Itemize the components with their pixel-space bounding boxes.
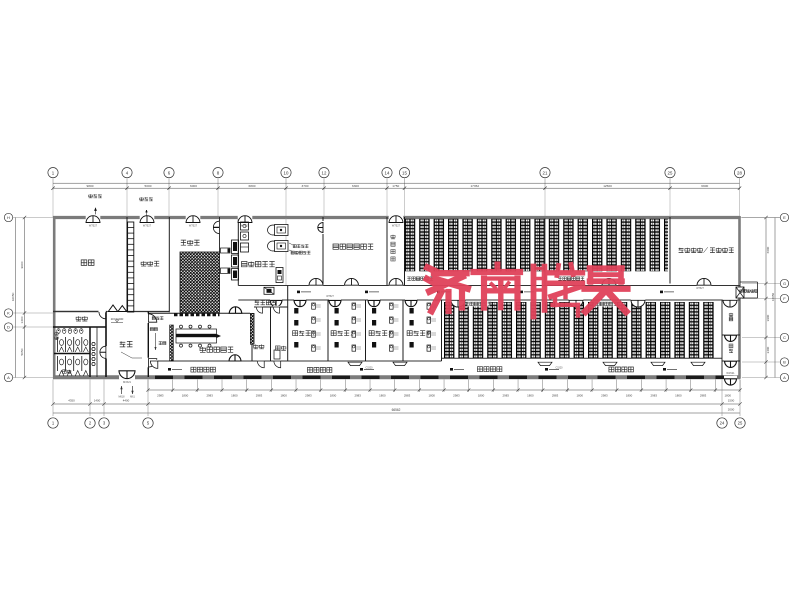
- svg-text:H: H: [7, 215, 10, 220]
- svg-text:6600: 6600: [766, 246, 770, 253]
- svg-text:2983: 2983: [502, 393, 509, 397]
- svg-text:3: 3: [389, 331, 392, 337]
- svg-text:B: B: [783, 360, 786, 365]
- svg-text:D: D: [7, 325, 10, 330]
- svg-text:2000: 2000: [728, 408, 735, 412]
- svg-text:W7527: W7527: [89, 224, 98, 228]
- svg-text:15: 15: [402, 170, 407, 175]
- svg-text:1800: 1800: [527, 393, 534, 397]
- svg-text:A: A: [783, 375, 786, 380]
- svg-text:21: 21: [543, 170, 548, 175]
- svg-text:W1521: W1521: [726, 371, 735, 375]
- svg-text:28: 28: [737, 170, 742, 175]
- svg-text:2983: 2983: [404, 393, 411, 397]
- svg-text:1F±0.000: 1F±0.000: [111, 317, 124, 321]
- svg-text:1800: 1800: [428, 393, 435, 397]
- svg-text:2983: 2983: [256, 393, 263, 397]
- svg-text:1750: 1750: [392, 184, 399, 188]
- svg-text:1800: 1800: [478, 393, 485, 397]
- svg-text:W7527: W7527: [392, 224, 401, 228]
- svg-text:2: 2: [351, 331, 354, 337]
- svg-text:2983: 2983: [305, 393, 312, 397]
- svg-text:2400: 2400: [766, 346, 770, 353]
- svg-text:16050: 16050: [11, 292, 15, 301]
- svg-text:2983: 2983: [206, 393, 213, 397]
- svg-text:M61: M61: [130, 396, 135, 399]
- svg-text:3700: 3700: [302, 184, 309, 188]
- svg-text:5000: 5000: [145, 184, 152, 188]
- svg-text:5050: 5050: [20, 348, 24, 355]
- svg-text:G: G: [783, 281, 786, 286]
- svg-text:1500: 1500: [728, 399, 735, 403]
- svg-text:C1520: C1520: [365, 366, 373, 369]
- svg-text:9600: 9600: [20, 261, 24, 268]
- svg-text:4: 4: [427, 331, 430, 337]
- svg-text:25: 25: [738, 421, 743, 426]
- svg-text:2983: 2983: [552, 393, 559, 397]
- svg-text:1800: 1800: [280, 393, 287, 397]
- svg-text:C: C: [783, 335, 786, 340]
- svg-text:4400: 4400: [123, 399, 130, 403]
- svg-text:W7527: W7527: [696, 287, 704, 290]
- svg-text:24: 24: [720, 421, 725, 426]
- svg-text:6300: 6300: [352, 184, 359, 188]
- svg-text:1800: 1800: [231, 393, 238, 397]
- svg-text:25: 25: [668, 170, 673, 175]
- svg-text:1800: 1800: [725, 393, 732, 397]
- svg-text:W7527: W7527: [143, 224, 152, 228]
- svg-text:12: 12: [322, 170, 327, 175]
- svg-text:C1520: C1520: [555, 366, 563, 369]
- svg-text:2983: 2983: [453, 393, 460, 397]
- svg-text:W7527: W7527: [326, 295, 334, 298]
- svg-text:1800: 1800: [675, 393, 682, 397]
- svg-text:6000: 6000: [190, 184, 197, 188]
- svg-text:4350: 4350: [68, 399, 75, 403]
- svg-text:1400: 1400: [94, 399, 101, 403]
- svg-text:10: 10: [284, 170, 289, 175]
- svg-text:1800: 1800: [577, 393, 584, 397]
- svg-text:E: E: [783, 215, 786, 220]
- svg-text:2983: 2983: [700, 393, 707, 397]
- svg-text:1800: 1800: [182, 393, 189, 397]
- svg-text:14: 14: [385, 170, 390, 175]
- svg-text:6800: 6800: [249, 184, 256, 188]
- svg-text:1800: 1800: [330, 393, 337, 397]
- svg-text:W7527: W7527: [189, 224, 198, 228]
- svg-text:2983: 2983: [354, 393, 361, 397]
- svg-text:1: 1: [312, 331, 315, 337]
- svg-text:2983: 2983: [651, 393, 658, 397]
- svg-text:2983: 2983: [601, 393, 608, 397]
- svg-text:1800: 1800: [626, 393, 633, 397]
- svg-text:2983: 2983: [157, 393, 164, 397]
- svg-text:17352: 17352: [470, 184, 479, 188]
- svg-text:9800: 9800: [87, 184, 94, 188]
- svg-text:1400: 1400: [20, 316, 24, 323]
- svg-text:3900: 3900: [766, 314, 770, 321]
- svg-text:6900: 6900: [701, 184, 708, 188]
- svg-text:A: A: [7, 375, 10, 380]
- svg-text:66562: 66562: [392, 408, 401, 412]
- svg-text:12500: 12500: [603, 184, 612, 188]
- svg-text:16050: 16050: [771, 292, 775, 301]
- svg-text:K: K: [7, 311, 10, 316]
- svg-text:M1521: M1521: [123, 380, 131, 384]
- svg-text:1800: 1800: [379, 393, 386, 397]
